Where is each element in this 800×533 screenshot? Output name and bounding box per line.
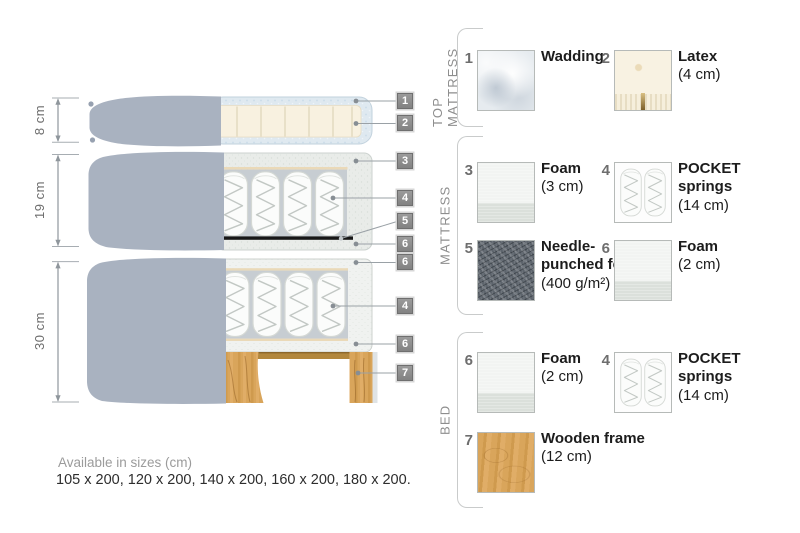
section-title-bed: BED (436, 332, 454, 508)
marker-6b: 6 (397, 254, 413, 270)
legend-item-label: POCKET springs (14 cm) (678, 350, 778, 405)
legend-item-label: POCKET springs (14 cm) (678, 160, 778, 215)
middle-mattress-fabric (89, 152, 225, 251)
legend-item-number: 2 (592, 50, 610, 67)
marker-6: 6 (397, 236, 413, 252)
legend-item-number: 3 (455, 162, 473, 179)
foam-texture-swatch (477, 352, 535, 413)
marker-6c: 6 (397, 336, 413, 352)
top-mattress-fabric (90, 96, 222, 147)
dimension-lines (52, 98, 79, 402)
legend-item-number: 7 (455, 432, 473, 449)
top-mattress-section (88, 96, 372, 147)
foam-texture-swatch (477, 162, 535, 223)
section-title-mattress: MATTRESS (436, 136, 454, 315)
marker-4b: 4 (397, 298, 413, 314)
needle-felt-layer (217, 236, 353, 239)
legend-item-number: 4 (592, 352, 610, 369)
wadding-texture-swatch (477, 50, 535, 111)
marker-1: 1 (397, 93, 413, 109)
available-sizes-list: 105 x 200, 120 x 200, 140 x 200, 160 x 2… (56, 472, 411, 488)
legend-item-number: 5 (455, 240, 473, 257)
legend-item-number: 1 (455, 50, 473, 67)
legend-item-number: 4 (592, 162, 610, 179)
marker-2: 2 (397, 115, 413, 131)
marker-5: 5 (397, 213, 413, 229)
section-title-top-mattress: TOP MATTRESS (436, 28, 454, 127)
bed-base-section (87, 258, 378, 404)
marker-3: 3 (397, 153, 413, 169)
dimension-label-30cm: 30 cm (32, 301, 50, 361)
latex-texture-swatch (614, 50, 672, 111)
bed-construction-infographic: 8 cm 19 cm 30 cm 1 2 3 4 5 6 6 4 6 7 TOP… (0, 0, 800, 533)
bed-cross-section-drawing (0, 0, 440, 533)
pocket-springs-swatch (614, 352, 672, 413)
wood-texture-swatch (477, 432, 535, 493)
dimension-label-8cm: 8 cm (32, 90, 50, 150)
available-sizes-heading: Available in sizes (cm) (58, 455, 192, 470)
legend-item-label: Wooden frame (12 cm) (541, 430, 691, 467)
legend-item-number: 6 (592, 240, 610, 257)
marker-4: 4 (397, 190, 413, 206)
wooden-frame (220, 352, 378, 403)
dimension-label-19cm: 19 cm (32, 170, 50, 230)
needle-punched-felt-swatch (477, 240, 535, 301)
legend-item-number: 6 (455, 352, 473, 369)
middle-mattress-section (89, 152, 373, 251)
foam-texture-swatch (614, 240, 672, 301)
legend-item-label: Latex (4 cm) (678, 48, 793, 85)
marker-7: 7 (397, 365, 413, 381)
bed-base-fabric (87, 258, 226, 404)
pocket-springs-swatch (614, 162, 672, 223)
legend-item-label: Foam (2 cm) (678, 238, 793, 275)
